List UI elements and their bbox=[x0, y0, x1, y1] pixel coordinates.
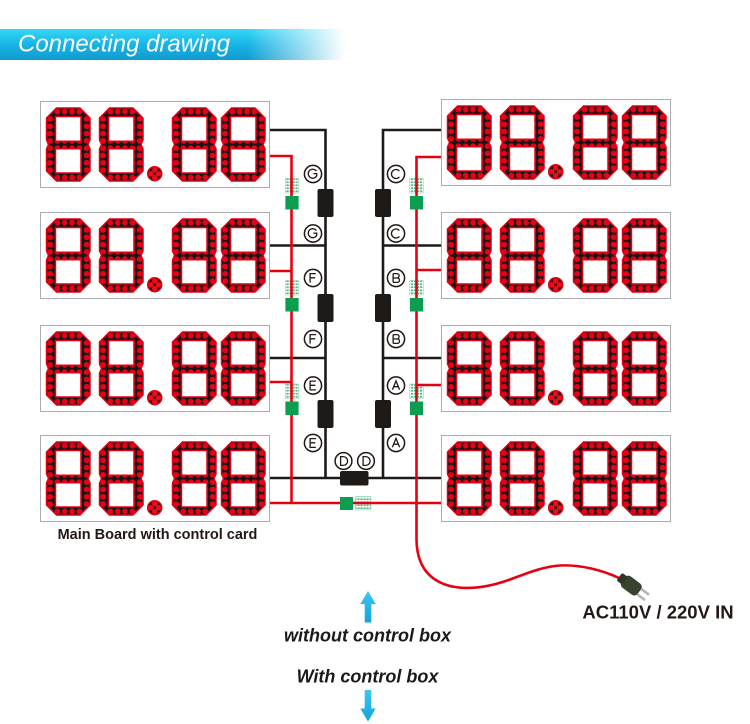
svg-text:With control box: With control box bbox=[297, 667, 440, 687]
svg-text:Connecting drawing: Connecting drawing bbox=[18, 31, 231, 58]
svg-text:without control box: without control box bbox=[284, 626, 452, 646]
svg-text:Main Board with control card: Main Board with control card bbox=[58, 527, 258, 543]
svg-text:AC110V / 220V IN: AC110V / 220V IN bbox=[582, 602, 733, 623]
